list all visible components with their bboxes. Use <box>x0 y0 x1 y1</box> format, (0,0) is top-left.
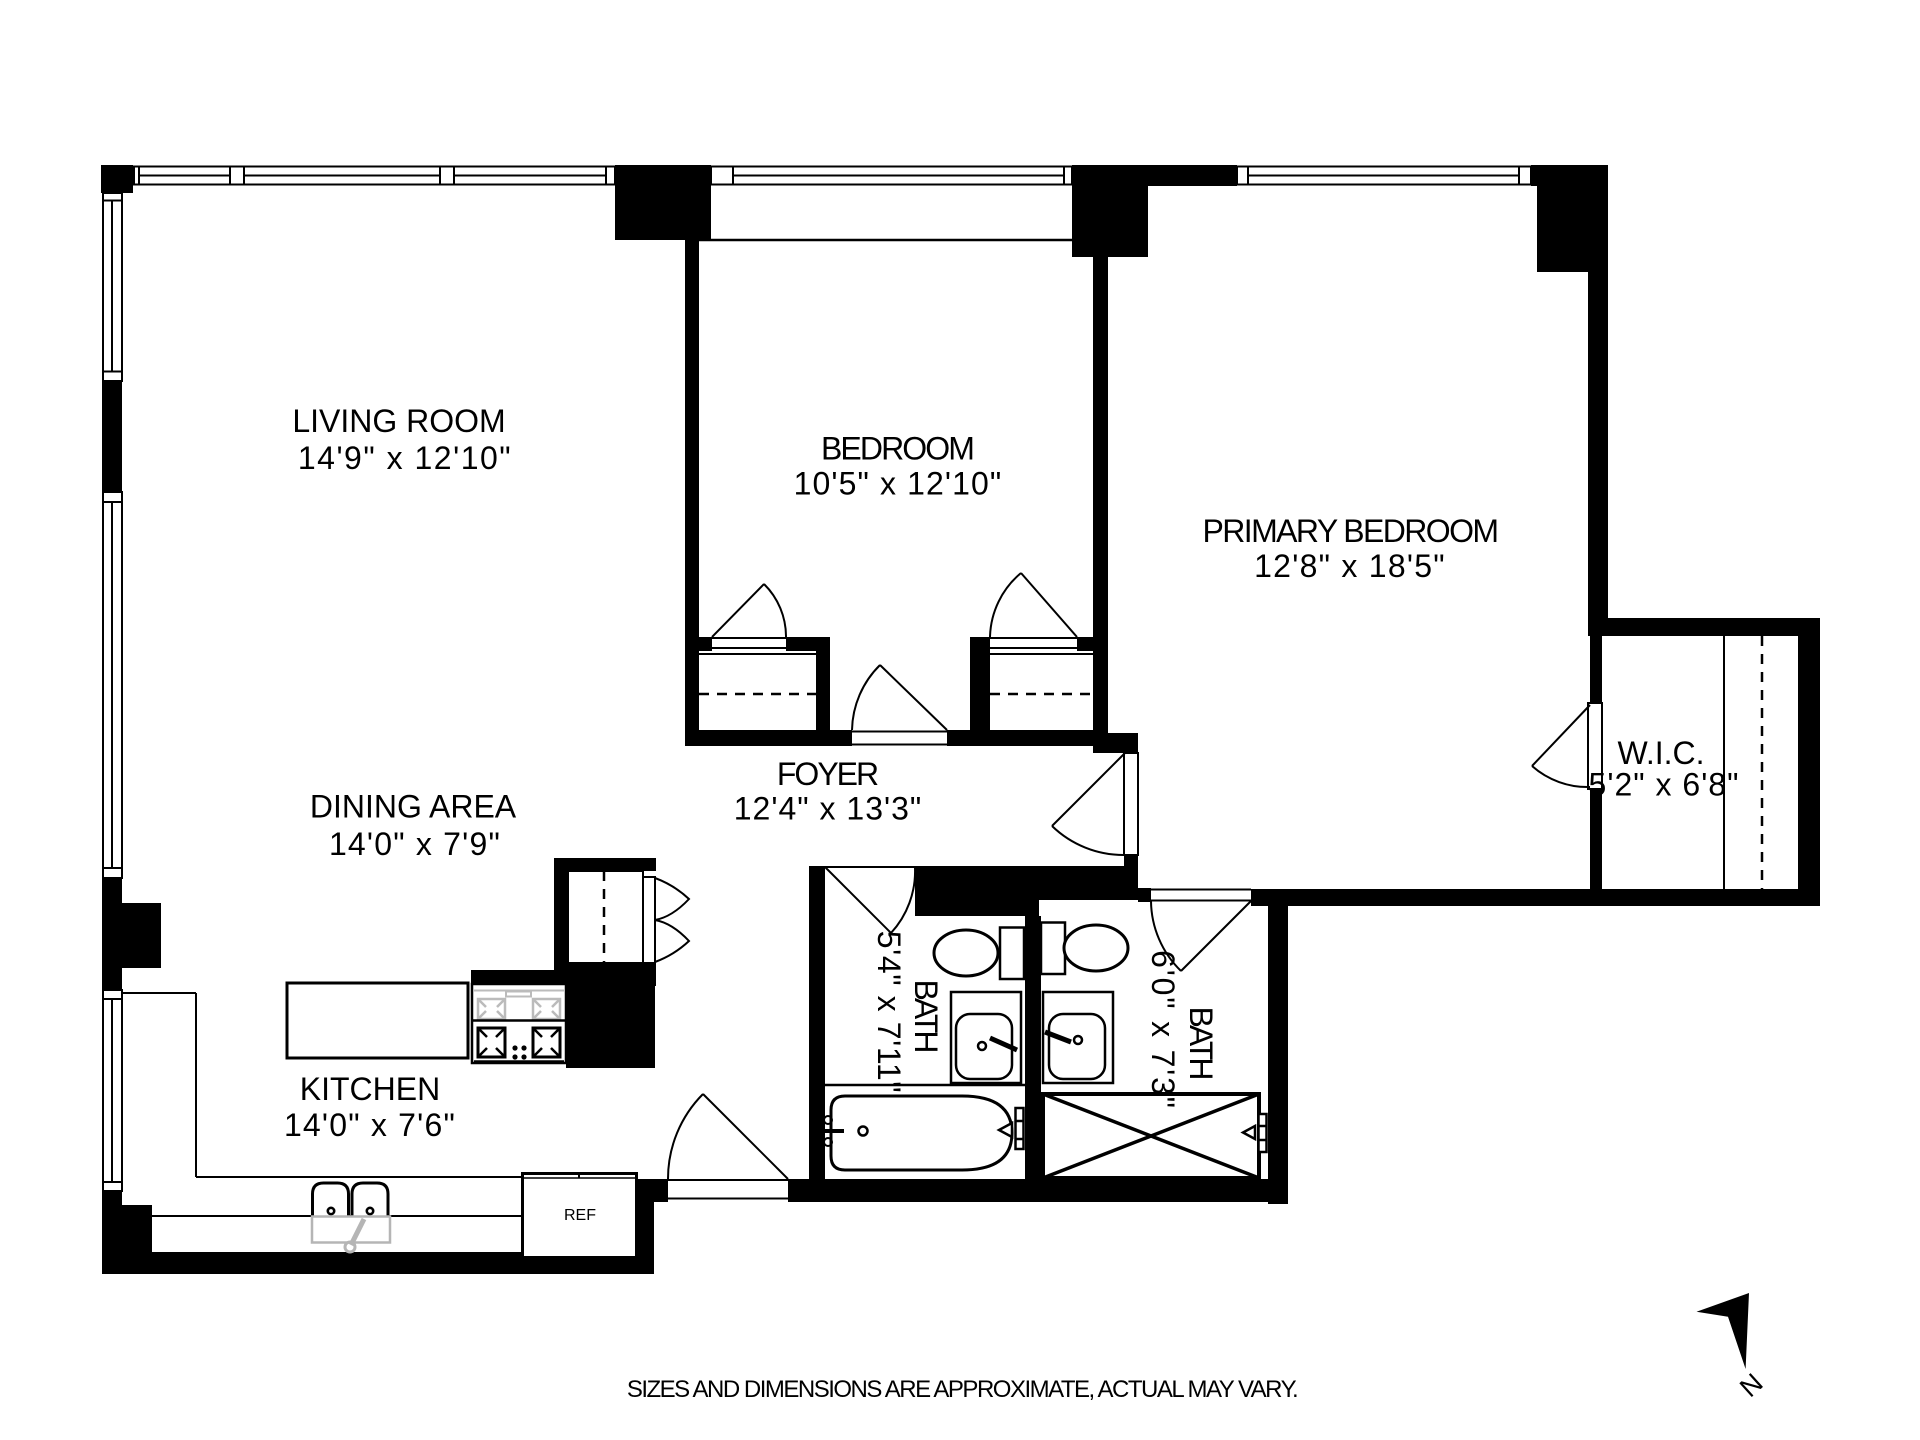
svg-text:5'2" x 6'8": 5'2" x 6'8" <box>1589 767 1740 803</box>
svg-text:5'4" x 7'11": 5'4" x 7'11" <box>871 931 907 1094</box>
svg-text:DINING AREA: DINING AREA <box>310 789 517 825</box>
svg-text:BATH: BATH <box>908 980 944 1052</box>
svg-text:14'0" x 7'6": 14'0" x 7'6" <box>284 1107 456 1143</box>
svg-text:PRIMARY BEDROOM: PRIMARY BEDROOM <box>1203 513 1498 549</box>
svg-text:REF: REF <box>564 1207 596 1224</box>
svg-text:6'0" x 7'3": 6'0" x 7'3" <box>1145 950 1181 1110</box>
svg-text:12'8" x 18'5": 12'8" x 18'5" <box>1254 548 1446 584</box>
svg-text:10'5" x 12'10": 10'5" x 12'10" <box>794 466 1003 502</box>
svg-text:FOYER: FOYER <box>777 756 878 792</box>
svg-text:LIVING ROOM: LIVING ROOM <box>292 403 505 439</box>
svg-text:BEDROOM: BEDROOM <box>821 431 973 467</box>
svg-text:12'4" x 13'3": 12'4" x 13'3" <box>734 791 923 827</box>
svg-text:14'0" x 7'9": 14'0" x 7'9" <box>329 826 501 862</box>
svg-text:SIZES AND DIMENSIONS ARE APPRO: SIZES AND DIMENSIONS ARE APPROXIMATE, AC… <box>627 1376 1297 1403</box>
svg-text:BATH: BATH <box>1183 1007 1219 1079</box>
svg-text:KITCHEN: KITCHEN <box>300 1071 440 1107</box>
svg-text:14'9" x 12'10": 14'9" x 12'10" <box>298 440 512 476</box>
